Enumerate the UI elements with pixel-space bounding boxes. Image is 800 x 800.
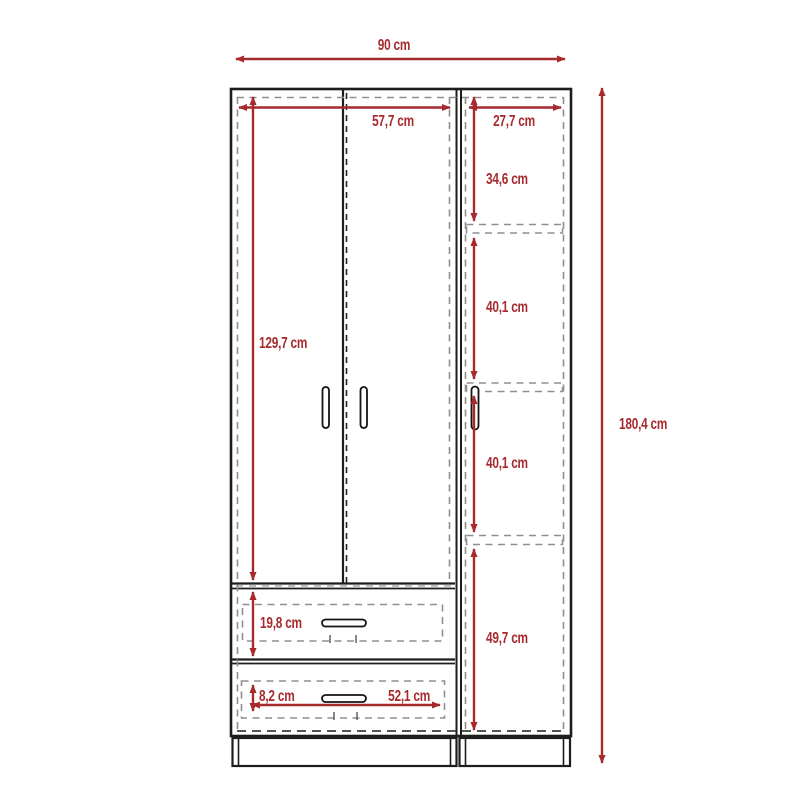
- wardrobe-dimension-diagram: 90 cm 57,7 cm 27,7 cm 129,7 cm 34,6 cm 4…: [0, 0, 800, 800]
- dim-label-shelf-top: 34,6 cm: [486, 169, 528, 187]
- dim-label-shelf-mid-lower: 40,1 cm: [486, 453, 528, 471]
- plinth-left: [233, 738, 457, 766]
- dim-label-shelf-bottom: 49,7 cm: [486, 628, 528, 646]
- dim-label-side-width: 27,7 cm: [493, 111, 535, 129]
- drawer-2-handle: [322, 695, 366, 702]
- left-door-handle: [323, 387, 330, 428]
- dim-label-drawer-width: 52,1 cm: [388, 686, 430, 704]
- plinth-right: [460, 738, 571, 766]
- dim-label-drawer-1-height: 19,8 cm: [260, 613, 302, 631]
- dim-label-total-height: 180,4 cm: [619, 414, 667, 432]
- dim-label-drawer-2-height: 8,2 cm: [259, 686, 295, 704]
- technical-drawing-canvas: 90 cm 57,7 cm 27,7 cm 129,7 cm 34,6 cm 4…: [0, 0, 800, 800]
- dim-label-total-width: 90 cm: [378, 35, 410, 53]
- dim-label-doors-height: 129,7 cm: [259, 333, 307, 351]
- right-door-handle: [361, 387, 368, 428]
- dim-label-doors-width: 57,7 cm: [372, 111, 414, 129]
- dim-label-shelf-mid-upper: 40,1 cm: [486, 297, 528, 315]
- drawer-1-handle: [322, 620, 366, 627]
